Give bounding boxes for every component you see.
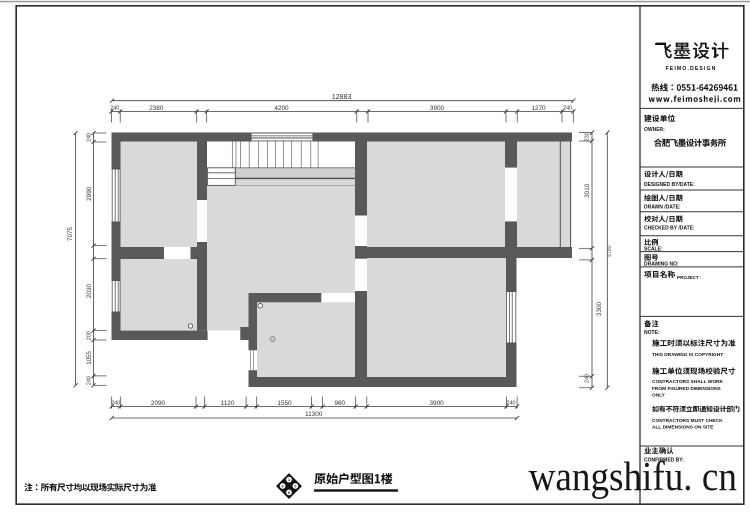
svg-text:960: 960 bbox=[334, 400, 345, 407]
svg-text:6: 6 bbox=[288, 491, 290, 495]
svg-text:ONLY: ONLY bbox=[652, 392, 666, 398]
svg-text:2090: 2090 bbox=[151, 400, 166, 407]
svg-text:NOTE:: NOTE: bbox=[644, 330, 660, 336]
svg-text:240: 240 bbox=[110, 106, 119, 112]
svg-text:0: 0 bbox=[294, 484, 296, 488]
svg-text:240: 240 bbox=[563, 106, 572, 112]
svg-text:THIS DRAWING IS COPYRIGHT: THIS DRAWING IS COPYRIGHT bbox=[652, 352, 723, 358]
svg-text:240: 240 bbox=[507, 401, 516, 407]
svg-text:FEIMO.DESIGN: FEIMO.DESIGN bbox=[666, 66, 717, 72]
svg-text:PROJECT :: PROJECT : bbox=[677, 275, 702, 280]
svg-text:1: 1 bbox=[288, 478, 290, 482]
svg-text:1055: 1055 bbox=[86, 350, 93, 364]
svg-text:SCALE:: SCALE: bbox=[644, 246, 663, 252]
svg-text:7075: 7075 bbox=[67, 226, 74, 241]
svg-text:CONTRACTORS MUST CHECK: CONTRACTORS MUST CHECK bbox=[652, 418, 723, 424]
svg-text:wangshifu. cn: wangshifu. cn bbox=[529, 453, 738, 499]
svg-text:3010: 3010 bbox=[584, 183, 591, 198]
svg-text:ALL DIMENSIONS ON SITE: ALL DIMENSIONS ON SITE bbox=[652, 425, 714, 431]
svg-text:200: 200 bbox=[87, 331, 93, 340]
svg-text:2990: 2990 bbox=[86, 186, 93, 201]
svg-text:3900: 3900 bbox=[429, 400, 444, 407]
svg-text:2380: 2380 bbox=[149, 105, 164, 112]
svg-text:4200: 4200 bbox=[274, 105, 289, 112]
svg-text:240: 240 bbox=[585, 374, 591, 383]
svg-text:1120: 1120 bbox=[221, 400, 235, 407]
svg-text:2030: 2030 bbox=[86, 283, 93, 298]
svg-text:CHECKED BY /DATE:: CHECKED BY /DATE: bbox=[644, 225, 695, 231]
svg-text:240: 240 bbox=[87, 133, 93, 142]
svg-text:12883: 12883 bbox=[332, 94, 352, 101]
svg-text:11300: 11300 bbox=[305, 411, 323, 418]
svg-text:240: 240 bbox=[87, 376, 93, 385]
svg-text:1550: 1550 bbox=[277, 400, 292, 407]
svg-text:FROM FIGURED DIMENSIONS: FROM FIGURED DIMENSIONS bbox=[652, 386, 722, 392]
svg-text:DESIGNED BY/DATE:: DESIGNED BY/DATE: bbox=[644, 182, 695, 188]
svg-text:DRAWING NO:: DRAWING NO: bbox=[644, 262, 679, 268]
svg-text:240: 240 bbox=[111, 401, 120, 407]
svg-text:1270: 1270 bbox=[531, 105, 546, 112]
svg-text:CONTRACTORS SHALL WORK: CONTRACTORS SHALL WORK bbox=[652, 379, 724, 385]
svg-text:OWNER:: OWNER: bbox=[644, 127, 665, 133]
svg-text:3900: 3900 bbox=[430, 105, 445, 112]
svg-text:230: 230 bbox=[585, 132, 591, 141]
svg-text:3300: 3300 bbox=[596, 301, 603, 316]
svg-text:0: 0 bbox=[282, 484, 284, 488]
svg-text:6780: 6780 bbox=[607, 245, 613, 256]
svg-text:DRAWN /DATE:: DRAWN /DATE: bbox=[644, 205, 681, 211]
